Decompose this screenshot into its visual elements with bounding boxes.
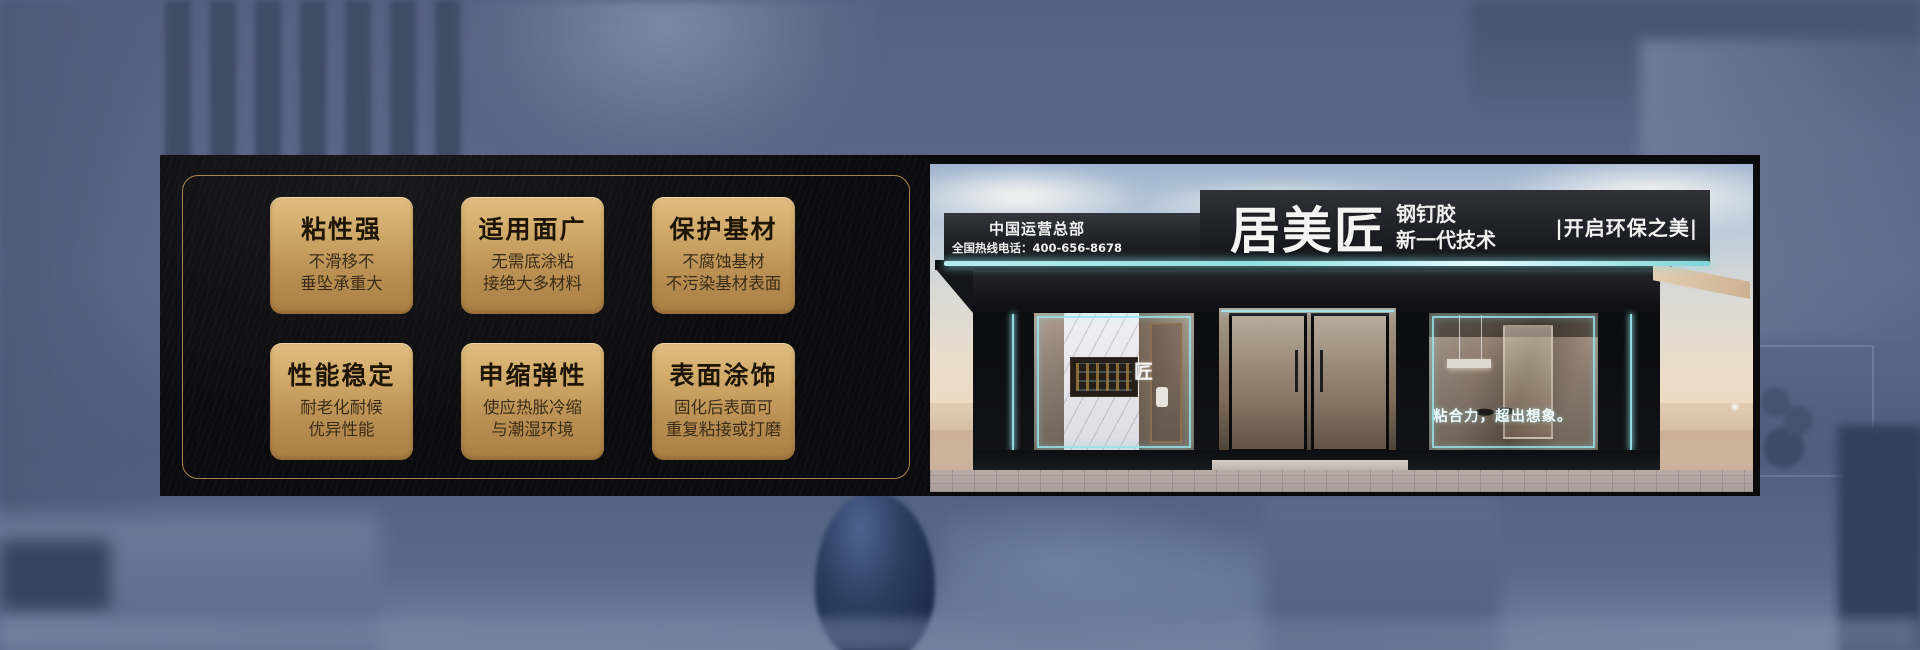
led-strip bbox=[944, 261, 1710, 266]
feature-desc-line: 使应热胀冷缩 bbox=[483, 397, 582, 418]
canopy-left-edge bbox=[935, 268, 973, 313]
bg-dark-object bbox=[0, 540, 110, 610]
feature-title: 表面涂饰 bbox=[669, 363, 777, 388]
canopy-side bbox=[1653, 263, 1750, 299]
neon-frame bbox=[1037, 316, 1191, 448]
sun-glare bbox=[1730, 402, 1740, 412]
feature-card: 适用面广 无需底涂粘 接绝大多材料 bbox=[461, 197, 604, 314]
feature-desc-line: 重复粘接或打磨 bbox=[666, 419, 782, 440]
canopy-soffit bbox=[973, 268, 1660, 312]
neon-frame bbox=[1221, 310, 1394, 312]
pavement bbox=[930, 470, 1753, 492]
sign-main: 居美匠 钢钉胶 新一代技术 |开启环保之美| bbox=[1200, 190, 1710, 263]
eco-slogan: |开启环保之美| bbox=[1555, 190, 1698, 263]
feature-card: 保护基材 不腐蚀基材 不污染基材表面 bbox=[652, 197, 795, 314]
hq-label: 中国运营总部 bbox=[962, 218, 1112, 239]
feature-card: 粘性强 不滑移不 垂坠承重大 bbox=[270, 197, 413, 314]
feature-desc-line: 优异性能 bbox=[309, 419, 375, 440]
feature-desc-line: 无需底涂粘 bbox=[491, 251, 574, 272]
feature-desc-line: 不污染基材表面 bbox=[666, 273, 782, 294]
shop-window-left: 匠 bbox=[1033, 312, 1195, 452]
glass-door bbox=[1311, 313, 1389, 452]
storefront-photo: 中国运营总部 全国热线电话：400-656-8678 居美匠 钢钉胶 新一代技术… bbox=[930, 164, 1753, 492]
bg-cabinet bbox=[1838, 425, 1920, 650]
feature-desc-line: 接绝大多材料 bbox=[483, 273, 582, 294]
feature-title: 申缩弹性 bbox=[478, 363, 586, 388]
entrance-step bbox=[1212, 460, 1408, 470]
promo-banner: 粘性强 不滑移不 垂坠承重大 适用面广 无需底涂粘 接绝大多材料 保护基材 不腐… bbox=[0, 0, 1920, 650]
feature-title: 适用面广 bbox=[478, 217, 586, 242]
neon-pillar-light bbox=[1630, 314, 1632, 450]
bg-stone-wall bbox=[455, 0, 875, 175]
feature-desc-line: 垂坠承重大 bbox=[300, 273, 383, 294]
glass-door bbox=[1229, 313, 1307, 452]
neon-frame bbox=[1432, 316, 1595, 448]
hotline-number: 全国热线电话：400-656-8678 bbox=[944, 240, 1130, 256]
feature-title: 粘性强 bbox=[301, 217, 382, 242]
feature-card: 性能稳定 耐老化耐候 优异性能 bbox=[270, 343, 413, 460]
features-grid: 粘性强 不滑移不 垂坠承重大 适用面广 无需底涂粘 接绝大多材料 保护基材 不腐… bbox=[270, 197, 795, 460]
brand-name: 居美匠 bbox=[1230, 190, 1386, 263]
features-panel: 粘性强 不滑移不 垂坠承重大 适用面广 无需底涂粘 接绝大多材料 保护基材 不腐… bbox=[160, 155, 930, 496]
brand-subtitle: 钢钉胶 新一代技术 bbox=[1396, 201, 1496, 254]
feature-title: 性能稳定 bbox=[287, 363, 395, 388]
door-handle bbox=[1295, 350, 1298, 392]
banner-panel: 粘性强 不滑移不 垂坠承重大 适用面广 无需底涂粘 接绝大多材料 保护基材 不腐… bbox=[160, 155, 1760, 496]
feature-desc-line: 耐老化耐候 bbox=[300, 397, 383, 418]
feature-card: 表面涂饰 固化后表面可 重复粘接或打磨 bbox=[652, 343, 795, 460]
feature-title: 保护基材 bbox=[669, 217, 777, 242]
entrance-doors bbox=[1219, 308, 1396, 460]
feature-card: 申缩弹性 使应热胀冷缩 与潮湿环境 bbox=[461, 343, 604, 460]
product-name: 钢钉胶 bbox=[1396, 201, 1496, 227]
bg-floor-glow bbox=[0, 618, 1920, 650]
feature-desc-line: 与潮湿环境 bbox=[491, 419, 574, 440]
tech-line: 新一代技术 bbox=[1396, 227, 1496, 253]
sign-left: 中国运营总部 全国热线电话：400-656-8678 bbox=[944, 213, 1200, 263]
shop-window-right: 粘合力，超出想象。 bbox=[1428, 312, 1599, 452]
feature-desc-line: 不腐蚀基材 bbox=[682, 251, 765, 272]
feature-desc-line: 固化后表面可 bbox=[674, 397, 773, 418]
feature-desc-line: 不滑移不 bbox=[309, 251, 375, 272]
neon-pillar-light bbox=[1012, 314, 1014, 450]
door-handle bbox=[1320, 350, 1323, 392]
